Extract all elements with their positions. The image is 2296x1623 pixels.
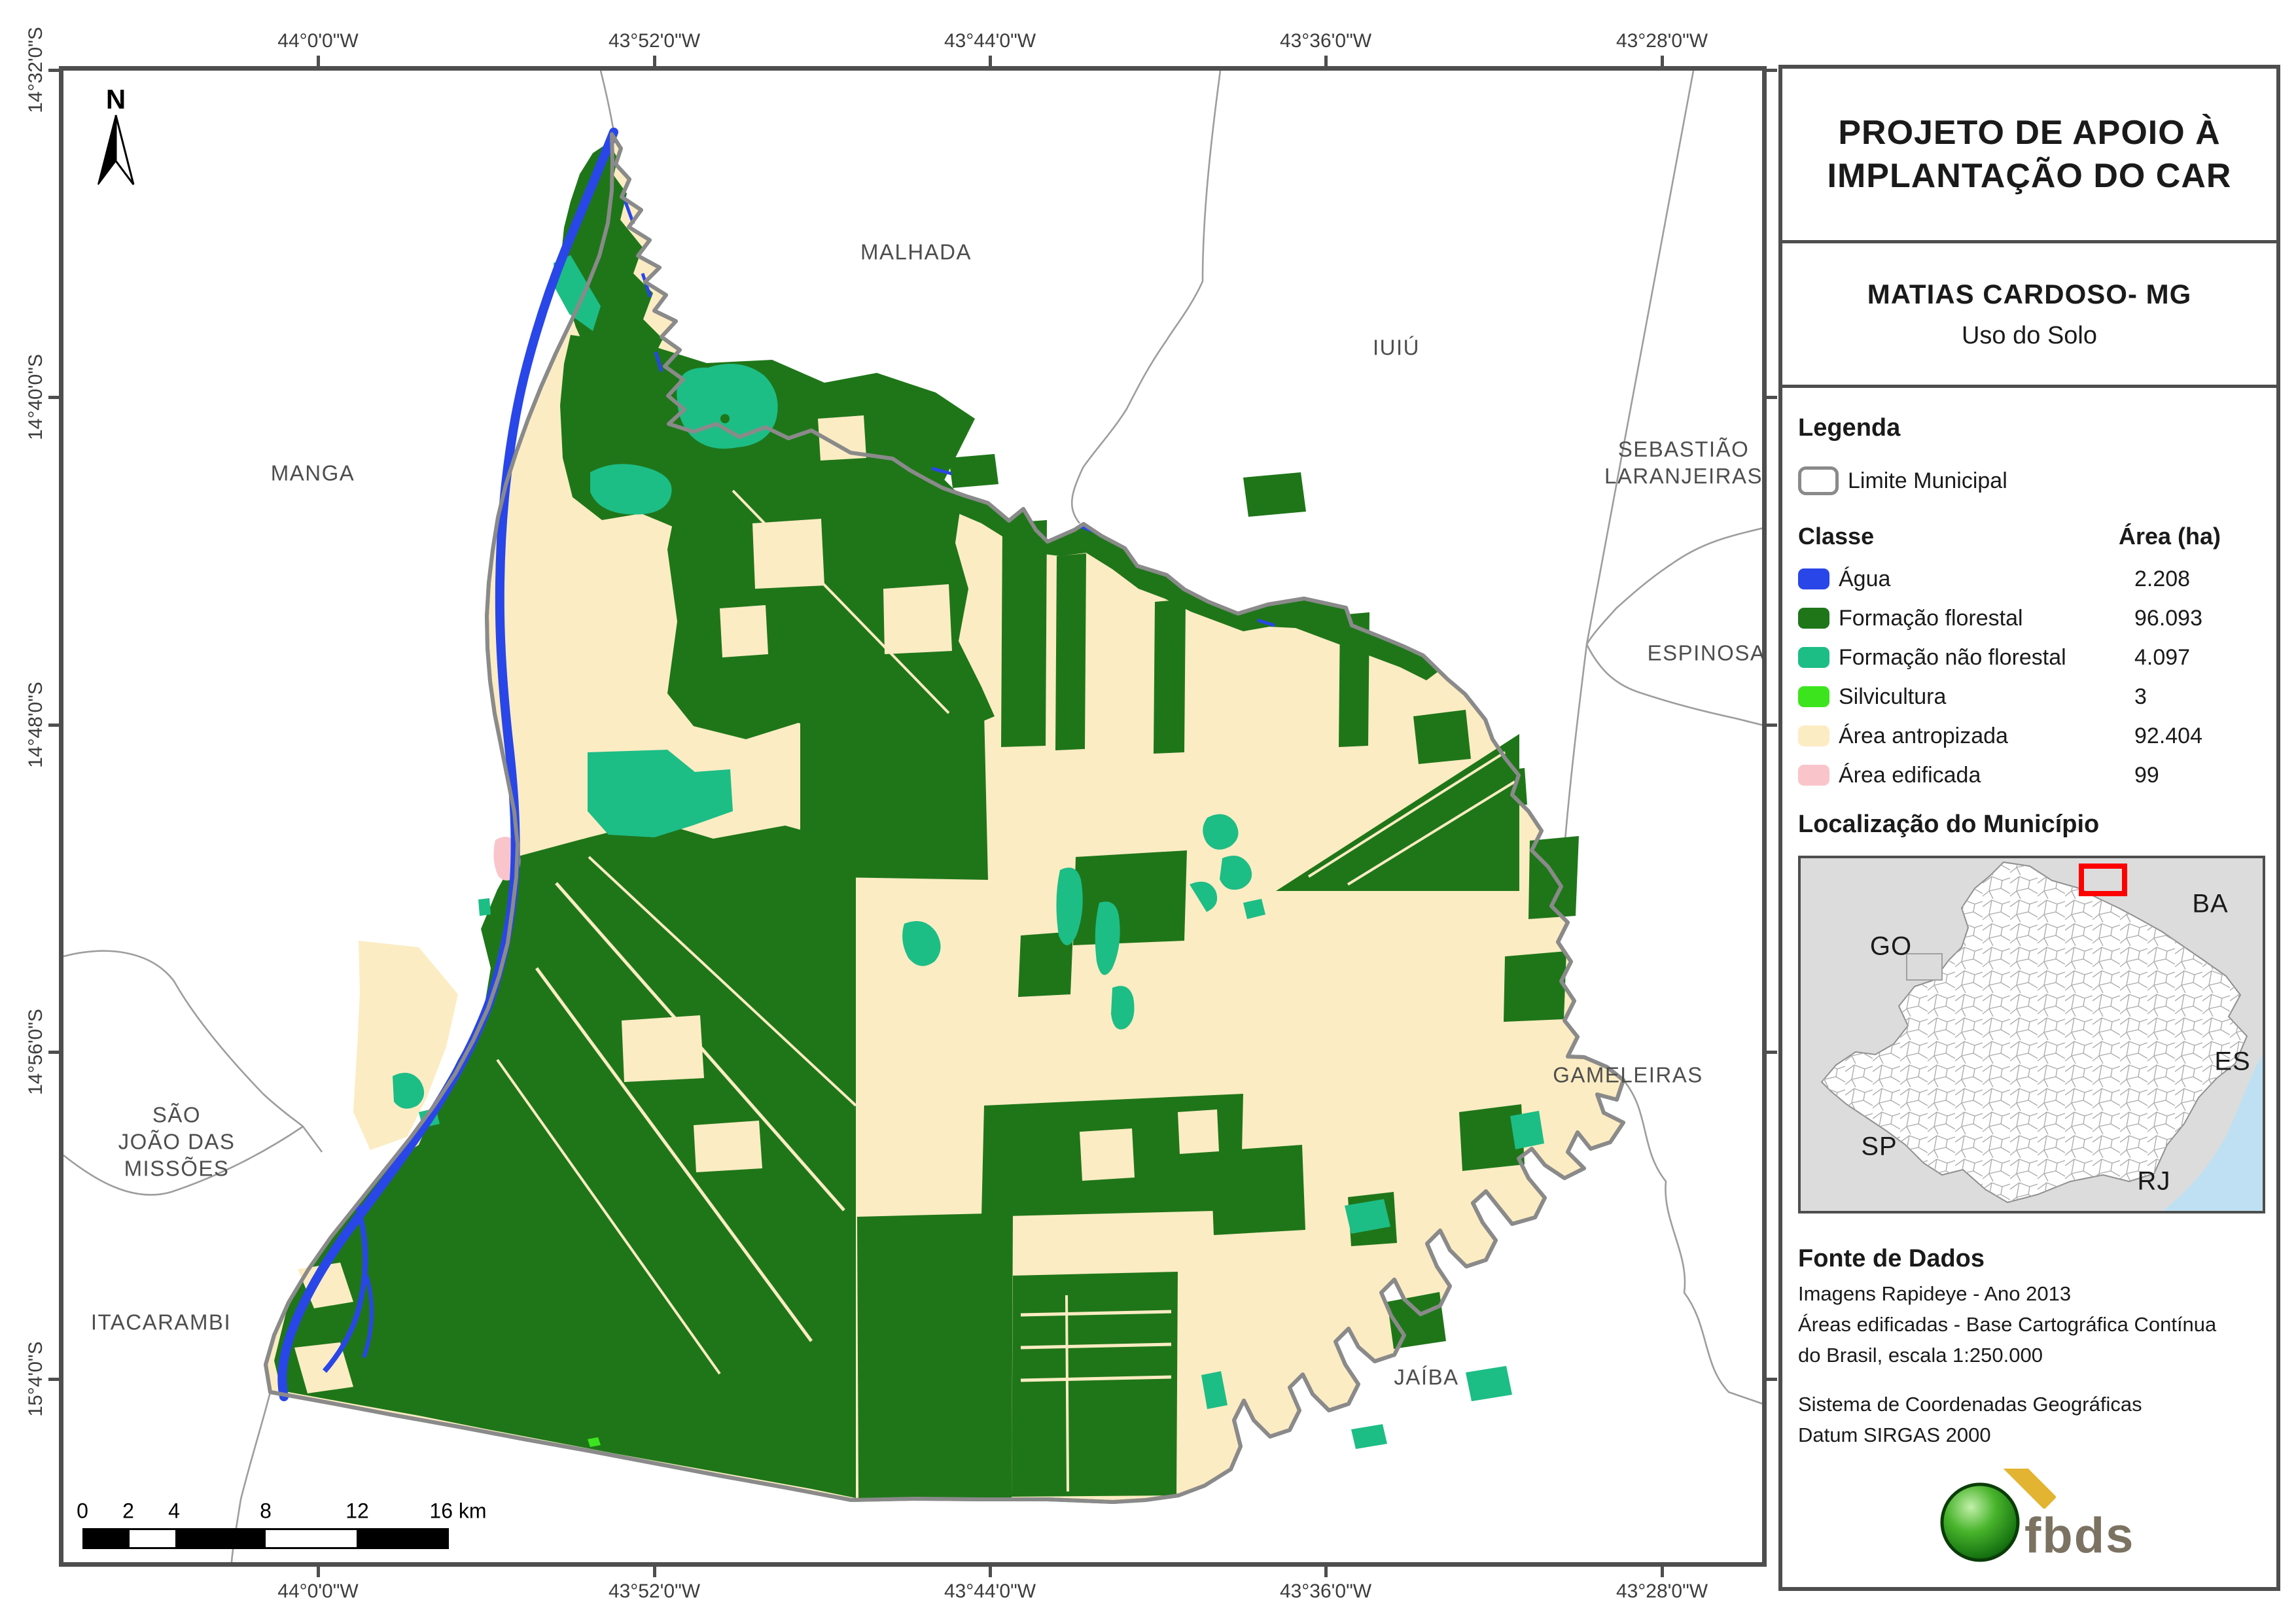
legend-swatch — [1798, 686, 1829, 707]
fbds-logo-canvas: fbds — [1782, 1469, 2276, 1586]
locator-map: GOBAESSPRJ — [1798, 856, 2265, 1213]
municipal-limit-swatch — [1798, 466, 1839, 495]
legend-swatch — [1798, 647, 1829, 668]
legend-row: Água2.208 — [1798, 559, 2256, 599]
logo-text: fbds — [2024, 1508, 2134, 1563]
longitude-label-bottom: 43°36'0"W — [1280, 1580, 1371, 1603]
locator-heading: Localização do Município — [1798, 811, 2099, 839]
latitude-tick-left — [48, 724, 59, 727]
legend-swatch — [1798, 568, 1829, 589]
legend-row: Área antropizada92.404 — [1798, 716, 2256, 756]
fbds-logo: fbds — [1782, 1469, 2276, 1586]
scalebar-bar — [82, 1528, 449, 1549]
area-column-header: Área (ha) — [2119, 523, 2221, 550]
logo-green-sphere — [1942, 1484, 2018, 1560]
longitude-label-top: 43°36'0"W — [1280, 30, 1371, 52]
legend-class-label: Área antropizada — [1839, 724, 2008, 749]
scalebar-label: 2 — [122, 1499, 134, 1524]
latitude-tick-right — [1767, 69, 1777, 72]
legend-area-value: 96.093 — [2134, 606, 2202, 631]
legend-area-value: 4.097 — [2134, 645, 2190, 671]
longitude-tick-bottom — [1661, 1567, 1664, 1577]
scalebar-segment — [357, 1530, 448, 1547]
class-column-header: Classe — [1798, 523, 1874, 550]
scalebar-segment — [84, 1530, 130, 1547]
latitude-tick-left — [48, 1378, 59, 1381]
longitude-tick-bottom — [989, 1567, 992, 1577]
legend-row: Silvicultura3 — [1798, 677, 2256, 716]
latitude-tick-left — [48, 1051, 59, 1054]
neighbor-label: MALHADA — [860, 239, 972, 266]
locator-state-label: GO — [1870, 932, 1912, 962]
locator-state-label: ES — [2214, 1047, 2250, 1077]
latitude-label-left: 14°56'0"S — [25, 1009, 47, 1095]
title-line-1: PROJETO DE APOIO À — [1838, 111, 2220, 154]
subtitle-box: MATIAS CARDOSO- MG Uso do Solo — [1782, 243, 2276, 388]
map-sheet: 44°0'0"W44°0'0"W43°52'0"W43°52'0"W43°44'… — [0, 0, 2296, 1623]
longitude-tick-top — [1661, 56, 1664, 66]
map-theme: Uso do Solo — [1962, 322, 2097, 350]
latitude-tick-left — [48, 396, 59, 399]
source-line: do Brasil, escala 1:250.000 — [1798, 1340, 2043, 1370]
map-canvas — [63, 71, 1762, 1562]
longitude-label-top: 44°0'0"W — [277, 30, 358, 52]
legend-class-label: Silvicultura — [1839, 684, 1946, 710]
legend-area-value: 3 — [2134, 684, 2147, 710]
neighbor-label: GAMELEIRAS — [1553, 1062, 1703, 1089]
longitude-label-bottom: 43°28'0"W — [1616, 1580, 1708, 1603]
legend-class-label: Formação não florestal — [1839, 645, 2066, 671]
longitude-label-top: 43°52'0"W — [609, 30, 700, 52]
longitude-tick-bottom — [1324, 1567, 1328, 1577]
legend-heading: Legenda — [1798, 414, 1900, 442]
legend-area-value: 92.404 — [2134, 724, 2202, 749]
crs-line: Datum SIRGAS 2000 — [1798, 1420, 1991, 1450]
neighbor-label: SEBASTIÃOLARANJEIRAS — [1604, 436, 1763, 489]
scalebar-label: 8 — [260, 1499, 272, 1524]
neighbor-label: JAÍBA — [1394, 1364, 1458, 1391]
latitude-tick-right — [1767, 724, 1777, 727]
municipality-name: MATIAS CARDOSO- MG — [1867, 279, 2192, 310]
longitude-label-bottom: 44°0'0"W — [277, 1580, 358, 1603]
longitude-tick-top — [317, 56, 320, 66]
title-line-2: IMPLANTAÇÃO DO CAR — [1828, 154, 2232, 198]
latitude-label-left: 15°4'0"S — [25, 1341, 47, 1416]
neighbor-label: IUIÚ — [1373, 334, 1420, 361]
neighbor-label: ESPINOSA — [1648, 640, 1766, 667]
crs-line: Sistema de Coordenadas Geográficas — [1798, 1389, 2142, 1420]
legend-swatch — [1798, 725, 1829, 746]
scalebar-segment — [175, 1530, 266, 1547]
scalebar-label: 16 km — [429, 1499, 486, 1524]
scalebar-segment — [130, 1530, 175, 1547]
north-label: N — [106, 84, 126, 115]
latitude-tick-right — [1767, 1378, 1777, 1381]
neighbor-label: SÃOJOÃO DASMISSÕES — [118, 1102, 236, 1182]
municipal-limit-label: Limite Municipal — [1848, 468, 2007, 494]
legend-row: Formação florestal96.093 — [1798, 599, 2256, 638]
latitude-label-left: 14°32'0"S — [25, 27, 47, 113]
latitude-tick-right — [1767, 1051, 1777, 1054]
latitude-tick-right — [1767, 396, 1777, 399]
longitude-tick-bottom — [317, 1567, 320, 1577]
longitude-tick-bottom — [653, 1567, 656, 1577]
title-box: PROJETO DE APOIO À IMPLANTAÇÃO DO CAR — [1782, 69, 2276, 243]
locator-state-label: BA — [2192, 890, 2228, 919]
neighbor-label: ITACARAMBI — [91, 1309, 231, 1336]
source-line: Imagens Rapideye - Ano 2013 — [1798, 1278, 2071, 1309]
latitude-label-left: 14°40'0"S — [25, 354, 47, 440]
locator-state-label: SP — [1861, 1132, 1897, 1162]
locator-state-label: RJ — [2138, 1167, 2171, 1196]
legend-area-value: 2.208 — [2134, 567, 2190, 592]
longitude-tick-top — [989, 56, 992, 66]
legend-class-label: Área edificada — [1839, 763, 1981, 788]
latitude-label-left: 14°48'0"S — [25, 682, 47, 768]
info-panel: PROJETO DE APOIO À IMPLANTAÇÃO DO CAR MA… — [1778, 65, 2280, 1591]
longitude-label-bottom: 43°52'0"W — [609, 1580, 700, 1603]
scalebar-label: 4 — [168, 1499, 180, 1524]
legend-swatch — [1798, 765, 1829, 786]
north-arrow-icon — [98, 115, 133, 184]
longitude-tick-top — [1324, 56, 1328, 66]
neighbor-label: MANGA — [271, 460, 355, 487]
legend-row: Área edificada99 — [1798, 756, 2256, 795]
longitude-label-bottom: 43°44'0"W — [944, 1580, 1036, 1603]
scalebar-segment — [266, 1530, 357, 1547]
source-line: Áreas edificadas - Base Cartográfica Con… — [1798, 1309, 2216, 1340]
source-heading: Fonte de Dados — [1798, 1245, 1985, 1273]
scalebar-label: 12 — [345, 1499, 369, 1524]
legend-class-label: Formação florestal — [1839, 606, 2023, 631]
longitude-label-top: 43°28'0"W — [1616, 30, 1708, 52]
latitude-tick-left — [48, 69, 59, 72]
legend-class-label: Água — [1839, 567, 1890, 592]
legend-area-value: 99 — [2134, 763, 2159, 788]
longitude-tick-top — [653, 56, 656, 66]
legend-swatch — [1798, 608, 1829, 629]
scalebar-label: 0 — [77, 1499, 88, 1524]
longitude-label-top: 43°44'0"W — [944, 30, 1036, 52]
legend-boundary-row: Limite Municipal — [1798, 466, 2007, 495]
legend-row: Formação não florestal4.097 — [1798, 638, 2256, 677]
